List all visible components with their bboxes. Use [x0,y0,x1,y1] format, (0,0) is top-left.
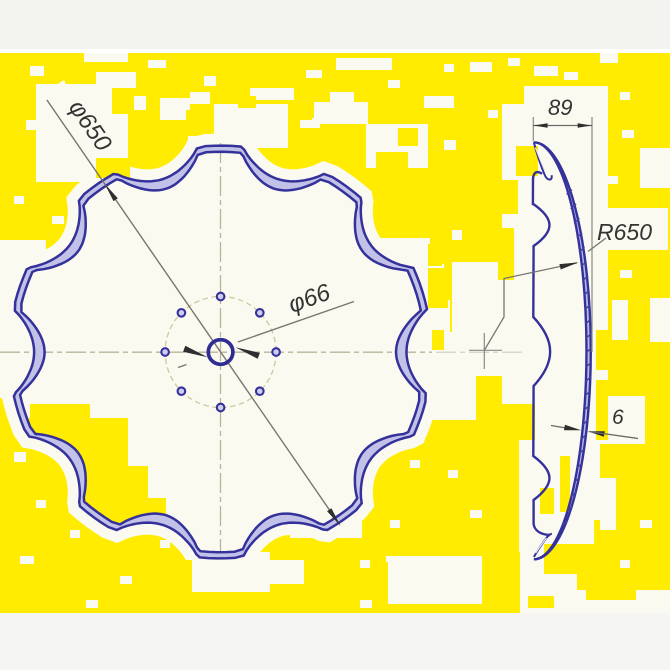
svg-text:89: 89 [548,95,572,120]
svg-text:R650: R650 [597,219,652,245]
svg-text:6: 6 [612,406,624,429]
